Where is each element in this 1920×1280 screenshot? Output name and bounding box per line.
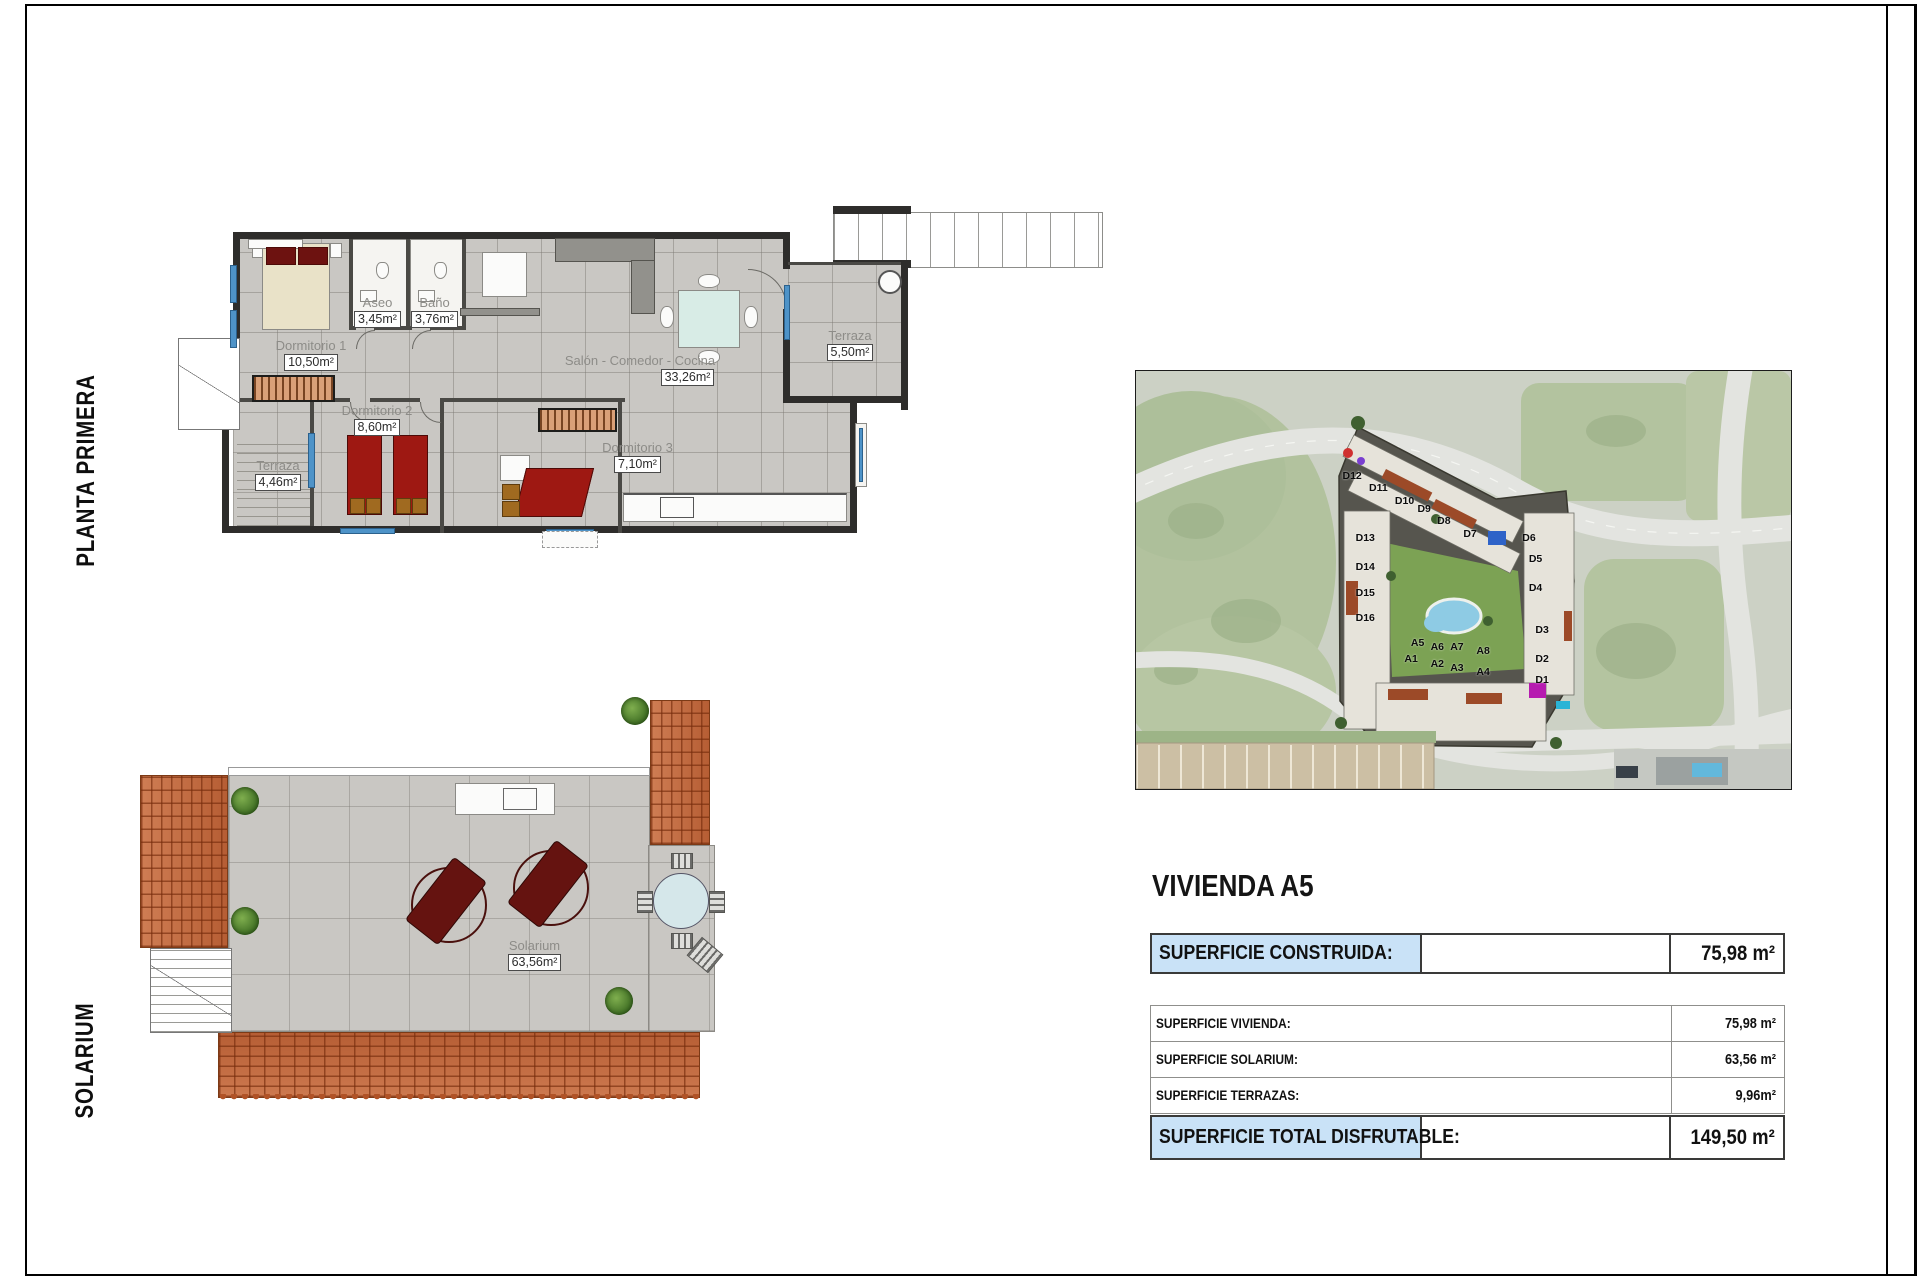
- site-map-unit-label: D13: [1356, 532, 1375, 544]
- row-label: SUPERFICIE SOLARIUM:: [1156, 1052, 1298, 1067]
- solarium-floorplan: Solarium 63,56m²: [135, 695, 725, 1110]
- roof-edge: [218, 1094, 700, 1101]
- pillow: [298, 247, 328, 265]
- bano-toilet: [434, 262, 447, 279]
- coffee-table: [482, 252, 527, 297]
- site-map-unit-label: A8: [1476, 645, 1489, 657]
- row-value: 9,96m²: [1736, 1088, 1776, 1104]
- terraza-round-table: [878, 270, 902, 294]
- site-map-unit-label: D14: [1356, 561, 1375, 573]
- frame-right-outer: [1914, 4, 1917, 1276]
- wardrobe: [538, 408, 617, 432]
- parapet: [228, 767, 650, 776]
- room-label-dormitorio-3: Dormitorio 3 7,10m²: [575, 440, 700, 473]
- site-map-unit-label: D5: [1529, 553, 1542, 565]
- site-map-unit-label: A3: [1450, 662, 1463, 674]
- room-name: Dormitorio 1: [276, 338, 347, 353]
- tv-bench: [460, 308, 540, 316]
- room-label-bano: Baño 3,76m²: [402, 295, 467, 328]
- row-value: 75,98 m²: [1701, 942, 1775, 966]
- room-name: Solarium: [509, 938, 560, 953]
- site-map-unit-label: D15: [1356, 587, 1375, 599]
- row-value-cell: 149,50 m²: [1671, 1117, 1783, 1158]
- kitchen-sink: [660, 497, 694, 518]
- row-value-cell: 75,98 m²: [1671, 935, 1783, 972]
- sofa-chaise: [631, 260, 655, 314]
- room-name: Salón - Comedor - Cocina: [565, 353, 715, 368]
- panel-title: VIVIENDA A5: [1152, 868, 1344, 904]
- terraza-door-window: [784, 285, 790, 340]
- room-label-dormitorio-1: Dormitorio 1 10,50m²: [246, 338, 376, 371]
- outdoor-sink: [503, 788, 537, 810]
- row-value-cell: 63,56 m²: [1672, 1042, 1784, 1077]
- wardrobe: [252, 375, 335, 402]
- bottom-window: [340, 528, 395, 534]
- room-label-salon: Salón - Comedor - Cocina 33,26m²: [515, 353, 765, 386]
- room-area: 33,26m²: [661, 369, 715, 386]
- dormitorio1-window: [230, 265, 237, 303]
- site-map-unit-label: A1: [1404, 653, 1417, 665]
- room-area: 7,10m²: [614, 456, 661, 473]
- site-map-unit-label: A5: [1411, 637, 1424, 649]
- frame-right-inner: [1886, 4, 1888, 1276]
- room-name: Terraza: [256, 458, 299, 473]
- room-area: 4,46m²: [255, 474, 302, 491]
- site-map-unit-label: A4: [1476, 666, 1489, 678]
- pillow: [350, 498, 365, 514]
- table-chair: [709, 891, 725, 913]
- table-row-superficie-total: SUPERFICIE TOTAL DISFRUTABLE: 149,50 m²: [1150, 1115, 1785, 1160]
- room-area: 10,50m²: [284, 354, 338, 371]
- row-spacer-cell: [1422, 935, 1671, 972]
- panel-title-text: VIVIENDA A5: [1152, 868, 1314, 904]
- bed: [514, 468, 594, 517]
- room-label-solarium: Solarium 63,56m²: [487, 938, 582, 971]
- planta-primera-margin-text: PLANTA PRIMERA: [72, 374, 101, 567]
- table-chair: [637, 891, 653, 913]
- pillow: [502, 501, 520, 517]
- site-map-unit-label: D8: [1437, 515, 1450, 527]
- dining-table: [678, 290, 740, 348]
- plant: [231, 787, 259, 815]
- frame-top: [25, 4, 1917, 6]
- room-area: 3,45m²: [354, 311, 401, 328]
- site-map-unit-label: D10: [1395, 495, 1414, 507]
- frame-left: [25, 4, 27, 1276]
- room-name: Baño: [419, 295, 449, 310]
- solarium-stairwell: [150, 948, 232, 1033]
- room-label-terraza-izquierda: Terraza 4,46m²: [238, 458, 318, 491]
- pillow: [396, 498, 411, 514]
- row-label-cell: SUPERFICIE TERRAZAS:: [1151, 1078, 1672, 1113]
- aseo-toilet: [376, 262, 389, 279]
- site-map-unit-label: D16: [1356, 612, 1375, 624]
- sofa: [555, 238, 655, 262]
- site-map-unit-label: D2: [1535, 653, 1548, 665]
- table-row-superficie-construida: SUPERFICIE CONSTRUIDA: 75,98 m²: [1150, 933, 1785, 974]
- pillow: [366, 498, 381, 514]
- pillow: [412, 498, 427, 514]
- left-stairwell: [178, 338, 240, 430]
- table-row-superficie-vivienda: SUPERFICIE VIVIENDA: 75,98 m²: [1150, 1005, 1785, 1042]
- dining-chair: [698, 274, 720, 288]
- row-label-cell: SUPERFICIE TOTAL DISFRUTABLE:: [1152, 1117, 1422, 1158]
- row-label: SUPERFICIE CONSTRUIDA:: [1159, 942, 1393, 965]
- site-map-unit-label: A7: [1450, 641, 1463, 653]
- roof-right: [650, 700, 710, 845]
- plant: [231, 907, 259, 935]
- planta-primera-margin-label: PLANTA PRIMERA: [62, 378, 110, 563]
- room-name: Dormitorio 3: [602, 440, 673, 455]
- site-map-unit-label: A6: [1431, 641, 1444, 653]
- site-map-unit-label: D6: [1522, 532, 1535, 544]
- site-map-labels: D12D11D10D9D8D7D13D14D15D16D6D5D4D3D2D1A…: [1136, 371, 1791, 789]
- table-chair: [671, 853, 693, 869]
- room-area: 3,76m²: [411, 311, 458, 328]
- room-area: 63,56m²: [508, 954, 562, 971]
- row-value: 149,50 m²: [1691, 1126, 1775, 1150]
- row-label-cell: SUPERFICIE VIVIENDA:: [1151, 1006, 1672, 1041]
- plant: [605, 987, 633, 1015]
- row-label: SUPERFICIE TERRAZAS:: [1156, 1088, 1299, 1103]
- site-map-unit-label: D3: [1535, 624, 1548, 636]
- room-area: 8,60m²: [354, 419, 401, 436]
- table-row-superficie-terrazas: SUPERFICIE TERRAZAS: 9,96m²: [1150, 1077, 1785, 1114]
- solarium-margin-text: SOLARIUM: [72, 1002, 101, 1118]
- pillow: [502, 484, 520, 500]
- site-map-unit-label: D4: [1529, 582, 1542, 594]
- site-map: D12D11D10D9D8D7D13D14D15D16D6D5D4D3D2D1A…: [1135, 370, 1792, 790]
- row-value: 75,98 m²: [1725, 1016, 1776, 1032]
- round-table: [653, 873, 709, 929]
- solarium-margin-label: SOLARIUM: [62, 995, 110, 1125]
- plant: [621, 697, 649, 725]
- table-chair: [671, 933, 693, 949]
- nightstand: [330, 243, 342, 258]
- room-label-terraza-derecha: Terraza 5,50m²: [800, 328, 900, 361]
- room-label-aseo: Aseo 3,45m²: [345, 295, 410, 328]
- dormitorio1-window-2: [230, 310, 237, 348]
- kitchen-counter: [623, 493, 847, 522]
- site-map-unit-label: D12: [1343, 470, 1362, 482]
- plan-sheet: PLANTA PRIMERA SOLARIUM: [0, 0, 1920, 1280]
- room-name: Terraza: [828, 328, 871, 343]
- row-label: SUPERFICIE TOTAL DISFRUTABLE:: [1159, 1126, 1460, 1149]
- roof-left: [140, 775, 228, 948]
- room-name: Aseo: [363, 295, 393, 310]
- pillow: [266, 247, 296, 265]
- room-label-dormitorio-2: Dormitorio 2 8,60m²: [312, 403, 442, 436]
- right-window-glass: [859, 428, 863, 482]
- window-sill: [542, 531, 598, 548]
- row-value-cell: 75,98 m²: [1672, 1006, 1784, 1041]
- table-row-superficie-solarium: SUPERFICIE SOLARIUM: 63,56 m²: [1150, 1041, 1785, 1078]
- dining-chair: [744, 306, 758, 328]
- room-area: 5,50m²: [827, 344, 874, 361]
- planta-primera-floorplan: Dormitorio 1 10,50m² Aseo 3,45m² Baño 3,…: [160, 190, 1120, 560]
- site-map-unit-label: D1: [1535, 674, 1548, 686]
- row-value-cell: 9,96m²: [1672, 1078, 1784, 1113]
- frame-bottom: [25, 1274, 1917, 1276]
- room-name: Dormitorio 2: [342, 403, 413, 418]
- row-label: SUPERFICIE VIVIENDA:: [1156, 1016, 1291, 1031]
- roof-bottom: [218, 1032, 700, 1098]
- site-map-unit-label: D9: [1417, 503, 1430, 515]
- site-map-unit-label: D11: [1369, 482, 1388, 494]
- row-label-cell: SUPERFICIE CONSTRUIDA:: [1152, 935, 1422, 972]
- site-map-unit-label: D7: [1463, 528, 1476, 540]
- site-map-unit-label: A2: [1431, 658, 1444, 670]
- row-label-cell: SUPERFICIE SOLARIUM:: [1151, 1042, 1672, 1077]
- row-value: 63,56 m²: [1725, 1052, 1776, 1068]
- dining-chair: [660, 306, 674, 328]
